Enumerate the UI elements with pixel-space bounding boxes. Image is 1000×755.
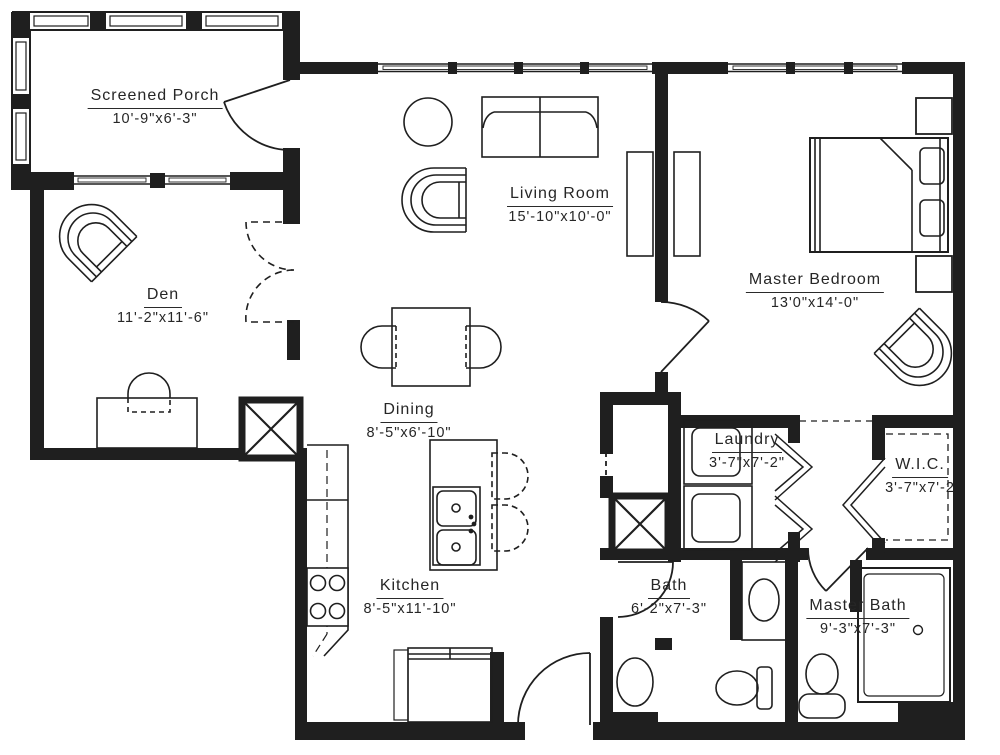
dining-chair-left bbox=[361, 326, 396, 368]
island bbox=[430, 440, 528, 570]
master-bedroom-furniture bbox=[674, 98, 965, 399]
entry-door bbox=[518, 653, 590, 725]
room-dims: 3'-7"x7'-2 bbox=[885, 479, 955, 498]
room-label-screened-porch: Screened Porch 10'-9"x6'-3" bbox=[88, 86, 223, 129]
room-label-laundry: Laundry 3'-7"x7'-2" bbox=[709, 430, 785, 473]
double-sink bbox=[433, 487, 480, 565]
porch-door bbox=[224, 80, 290, 150]
sofa bbox=[482, 97, 598, 157]
room-name: Den bbox=[144, 285, 182, 308]
room-label-den: Den 11'-2"x11'-6" bbox=[117, 285, 209, 328]
porch-window-top bbox=[12, 12, 300, 30]
desk-chair bbox=[128, 373, 170, 412]
floor-plan: Screened Porch 10'-9"x6'-3" Living Room … bbox=[0, 0, 1000, 755]
stove bbox=[307, 568, 348, 626]
room-name: Master Bath bbox=[806, 596, 909, 619]
room-name: Master Bedroom bbox=[746, 270, 884, 293]
room-name: Bath bbox=[648, 576, 691, 599]
master-bath-fixtures bbox=[799, 568, 950, 718]
room-dims: 8'-5"x11'-10" bbox=[363, 600, 456, 619]
refrigerator bbox=[394, 648, 492, 722]
den-armchair bbox=[46, 191, 137, 282]
hall-column bbox=[612, 496, 668, 552]
living-room-window bbox=[378, 62, 652, 74]
room-dims: 13'0"x14'-0" bbox=[746, 294, 884, 313]
dining-table bbox=[392, 308, 470, 386]
nightstand bbox=[916, 98, 952, 134]
room-label-master-bedroom: Master Bedroom 13'0"x14'-0" bbox=[746, 270, 884, 313]
room-dims: 8'-5"x6'-10" bbox=[366, 424, 451, 443]
room-name: Laundry bbox=[712, 430, 783, 453]
bed bbox=[810, 138, 948, 252]
living-room-furniture bbox=[402, 97, 653, 256]
wic-bifold-doors bbox=[843, 458, 885, 552]
round-side-table bbox=[404, 98, 452, 146]
room-label-wic: W.I.C. 3'-7"x7'-2 bbox=[885, 455, 955, 498]
room-dims: 11'-2"x11'-6" bbox=[117, 309, 209, 328]
room-name: Dining bbox=[380, 400, 437, 423]
master-bedroom-window bbox=[728, 62, 902, 74]
room-dims: 6'-2"x7'-3" bbox=[631, 600, 707, 619]
den-column bbox=[242, 400, 300, 458]
porch-den-window bbox=[74, 172, 230, 190]
room-name: Screened Porch bbox=[88, 86, 223, 109]
dining-chair-right bbox=[466, 326, 501, 368]
room-dims: 3'-7"x7'-2" bbox=[709, 454, 785, 473]
master-bedroom-door bbox=[661, 302, 709, 372]
room-name: W.I.C. bbox=[892, 455, 948, 478]
desk bbox=[97, 398, 197, 448]
room-dims: 9'-3"x7'-3" bbox=[806, 620, 909, 639]
room-label-dining: Dining 8'-5"x6'-10" bbox=[366, 400, 451, 443]
toilet bbox=[617, 658, 653, 706]
vanity-sink bbox=[742, 562, 786, 640]
room-name: Living Room bbox=[507, 184, 613, 207]
room-label-kitchen: Kitchen 8'-5"x11'-10" bbox=[363, 576, 456, 619]
room-name: Kitchen bbox=[377, 576, 443, 599]
tv-console-living bbox=[627, 152, 653, 256]
toilet-with-tank bbox=[716, 667, 772, 709]
master-toilet bbox=[799, 654, 845, 718]
room-label-master-bath: Master Bath 9'-3"x7'-3" bbox=[806, 596, 909, 639]
room-label-living-room: Living Room 15'-10"x10'-0" bbox=[507, 184, 613, 227]
room-dims: 15'-10"x10'-0" bbox=[507, 208, 613, 227]
den-french-doors bbox=[246, 222, 294, 322]
living-armchair bbox=[402, 168, 466, 232]
bedroom-armchair bbox=[874, 308, 965, 399]
nightstand bbox=[916, 256, 952, 292]
room-label-bath: Bath 6'-2"x7'-3" bbox=[631, 576, 707, 619]
dresser bbox=[674, 152, 700, 256]
dining-furniture bbox=[361, 308, 501, 386]
room-dims: 10'-9"x6'-3" bbox=[88, 110, 223, 129]
